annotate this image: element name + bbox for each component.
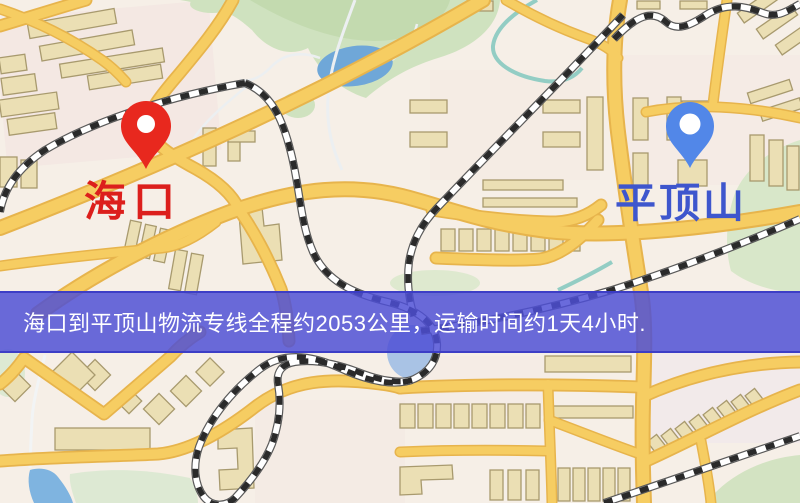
route-info-banner: 海口到平顶山物流专线全程约2053公里，运输时间约1天4小时. [0, 291, 800, 353]
building [490, 404, 505, 428]
building [573, 468, 585, 501]
map-screenshot: 海口 平顶山 海口到平顶山物流专线全程约2053公里，运输时间约1天4小时. [0, 0, 800, 503]
pin-hole [137, 115, 155, 133]
building [543, 100, 580, 113]
building [637, 1, 660, 9]
building [0, 54, 27, 73]
building [490, 470, 503, 500]
building [410, 132, 447, 147]
building [543, 132, 580, 147]
road [548, 384, 552, 503]
building [436, 404, 451, 428]
building [769, 140, 783, 186]
road [400, 450, 547, 452]
building [787, 146, 799, 190]
building [545, 356, 631, 372]
building [477, 229, 491, 251]
building [633, 98, 648, 140]
map-image [0, 0, 800, 503]
pin-hole [680, 114, 701, 135]
building [410, 100, 447, 113]
building [483, 198, 577, 207]
building [472, 404, 487, 428]
building [508, 470, 521, 500]
building [508, 404, 523, 428]
building [441, 229, 455, 251]
building [558, 468, 570, 501]
building [526, 470, 539, 500]
building [587, 97, 603, 170]
building [750, 135, 764, 181]
building [459, 229, 473, 251]
origin-label: 海口 [84, 181, 182, 223]
building [483, 180, 563, 190]
building [400, 404, 415, 428]
building [454, 404, 469, 428]
route-info-text: 海口到平顶山物流专线全程约2053公里，运输时间约1天4小时. [23, 306, 646, 338]
building [526, 404, 540, 428]
building [680, 1, 707, 9]
building [588, 468, 600, 501]
building [548, 406, 633, 418]
road [400, 385, 639, 388]
building [418, 404, 433, 428]
destination-label: 平顶山 [615, 183, 747, 224]
building [55, 428, 150, 450]
